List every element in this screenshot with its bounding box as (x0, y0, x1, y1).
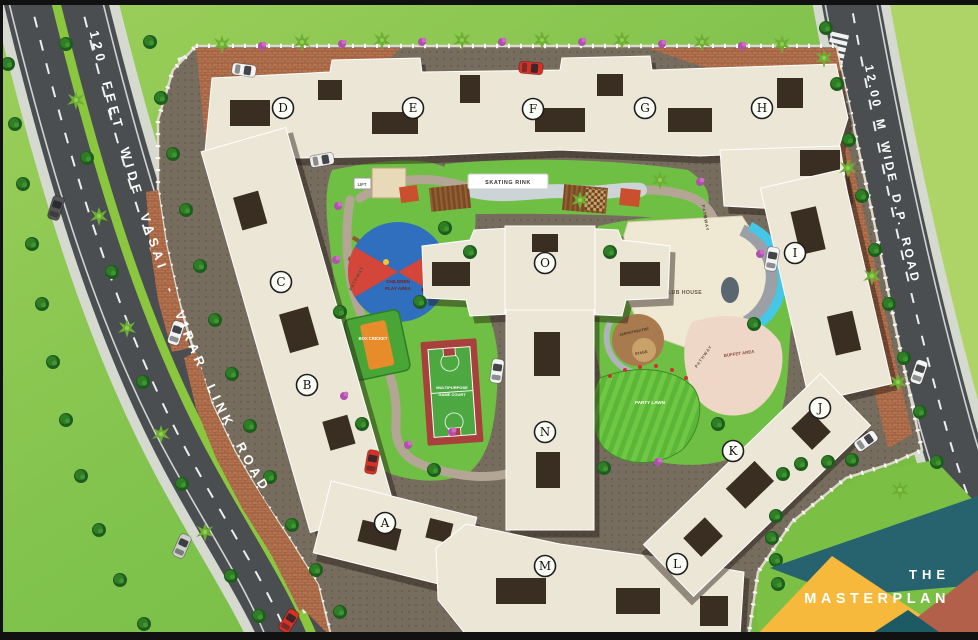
svg-text:A: A (380, 516, 390, 530)
game-court-label-1: MULTIPURPOSE (436, 385, 468, 390)
building-marker-j[interactable]: J (810, 398, 831, 419)
svg-text:I: I (793, 246, 798, 260)
building-marker-n[interactable]: N (535, 422, 556, 443)
svg-text:K: K (729, 444, 739, 458)
svg-text:J: J (816, 401, 823, 415)
lift-label: LIFT (358, 182, 367, 187)
svg-text:G: G (640, 101, 650, 115)
svg-text:D: D (278, 101, 288, 115)
svg-text:E: E (409, 101, 418, 115)
club-house-label: CLUB HOUSE (664, 290, 702, 296)
party-lawn-label: PARTY LAWN (635, 400, 666, 405)
building-marker-o[interactable]: O (535, 253, 556, 274)
svg-text:H: H (757, 101, 767, 115)
building-marker-b[interactable]: B (297, 375, 318, 396)
svg-text:M: M (539, 559, 551, 573)
building-center-stem[interactable] (506, 310, 594, 530)
building-marker-a[interactable]: A (375, 513, 396, 534)
children-play-label-2: PLAY AREA (385, 286, 412, 291)
building-marker-k[interactable]: K (723, 441, 744, 462)
svg-text:F: F (529, 102, 537, 116)
badge-line1: THE (909, 567, 950, 582)
children-play-label-1: CHILDREN (386, 279, 410, 284)
box-cricket-label: BOX CRICKET (359, 336, 388, 341)
building-marker-m[interactable]: M (535, 556, 556, 577)
skating-rink-label: SKATING RINK (485, 180, 531, 186)
svg-text:O: O (540, 256, 550, 270)
badge-line2: MASTERPLAN (804, 591, 950, 607)
building-marker-g[interactable]: G (635, 98, 656, 119)
lift-room: LIFT (354, 178, 371, 189)
svg-text:C: C (276, 275, 285, 289)
skating-rink[interactable]: SKATING RINK (468, 174, 548, 189)
masterplan-svg: LIFT SKATING RINK CHILDREN PLAY AREA BOX… (0, 0, 978, 640)
svg-text:B: B (303, 378, 312, 392)
svg-text:L: L (673, 557, 681, 571)
game-court-label-2: GAME COURT (438, 392, 466, 397)
building-marker-e[interactable]: E (403, 98, 424, 119)
building-marker-c[interactable]: C (271, 272, 292, 293)
svg-text:N: N (540, 425, 551, 439)
building-marker-l[interactable]: L (667, 554, 688, 575)
building-marker-i[interactable]: I (785, 243, 806, 264)
masterplan-canvas: LIFT SKATING RINK CHILDREN PLAY AREA BOX… (0, 0, 978, 640)
building-marker-d[interactable]: D (273, 98, 294, 119)
building-marker-f[interactable]: F (523, 99, 544, 120)
building-marker-h[interactable]: H (752, 98, 773, 119)
